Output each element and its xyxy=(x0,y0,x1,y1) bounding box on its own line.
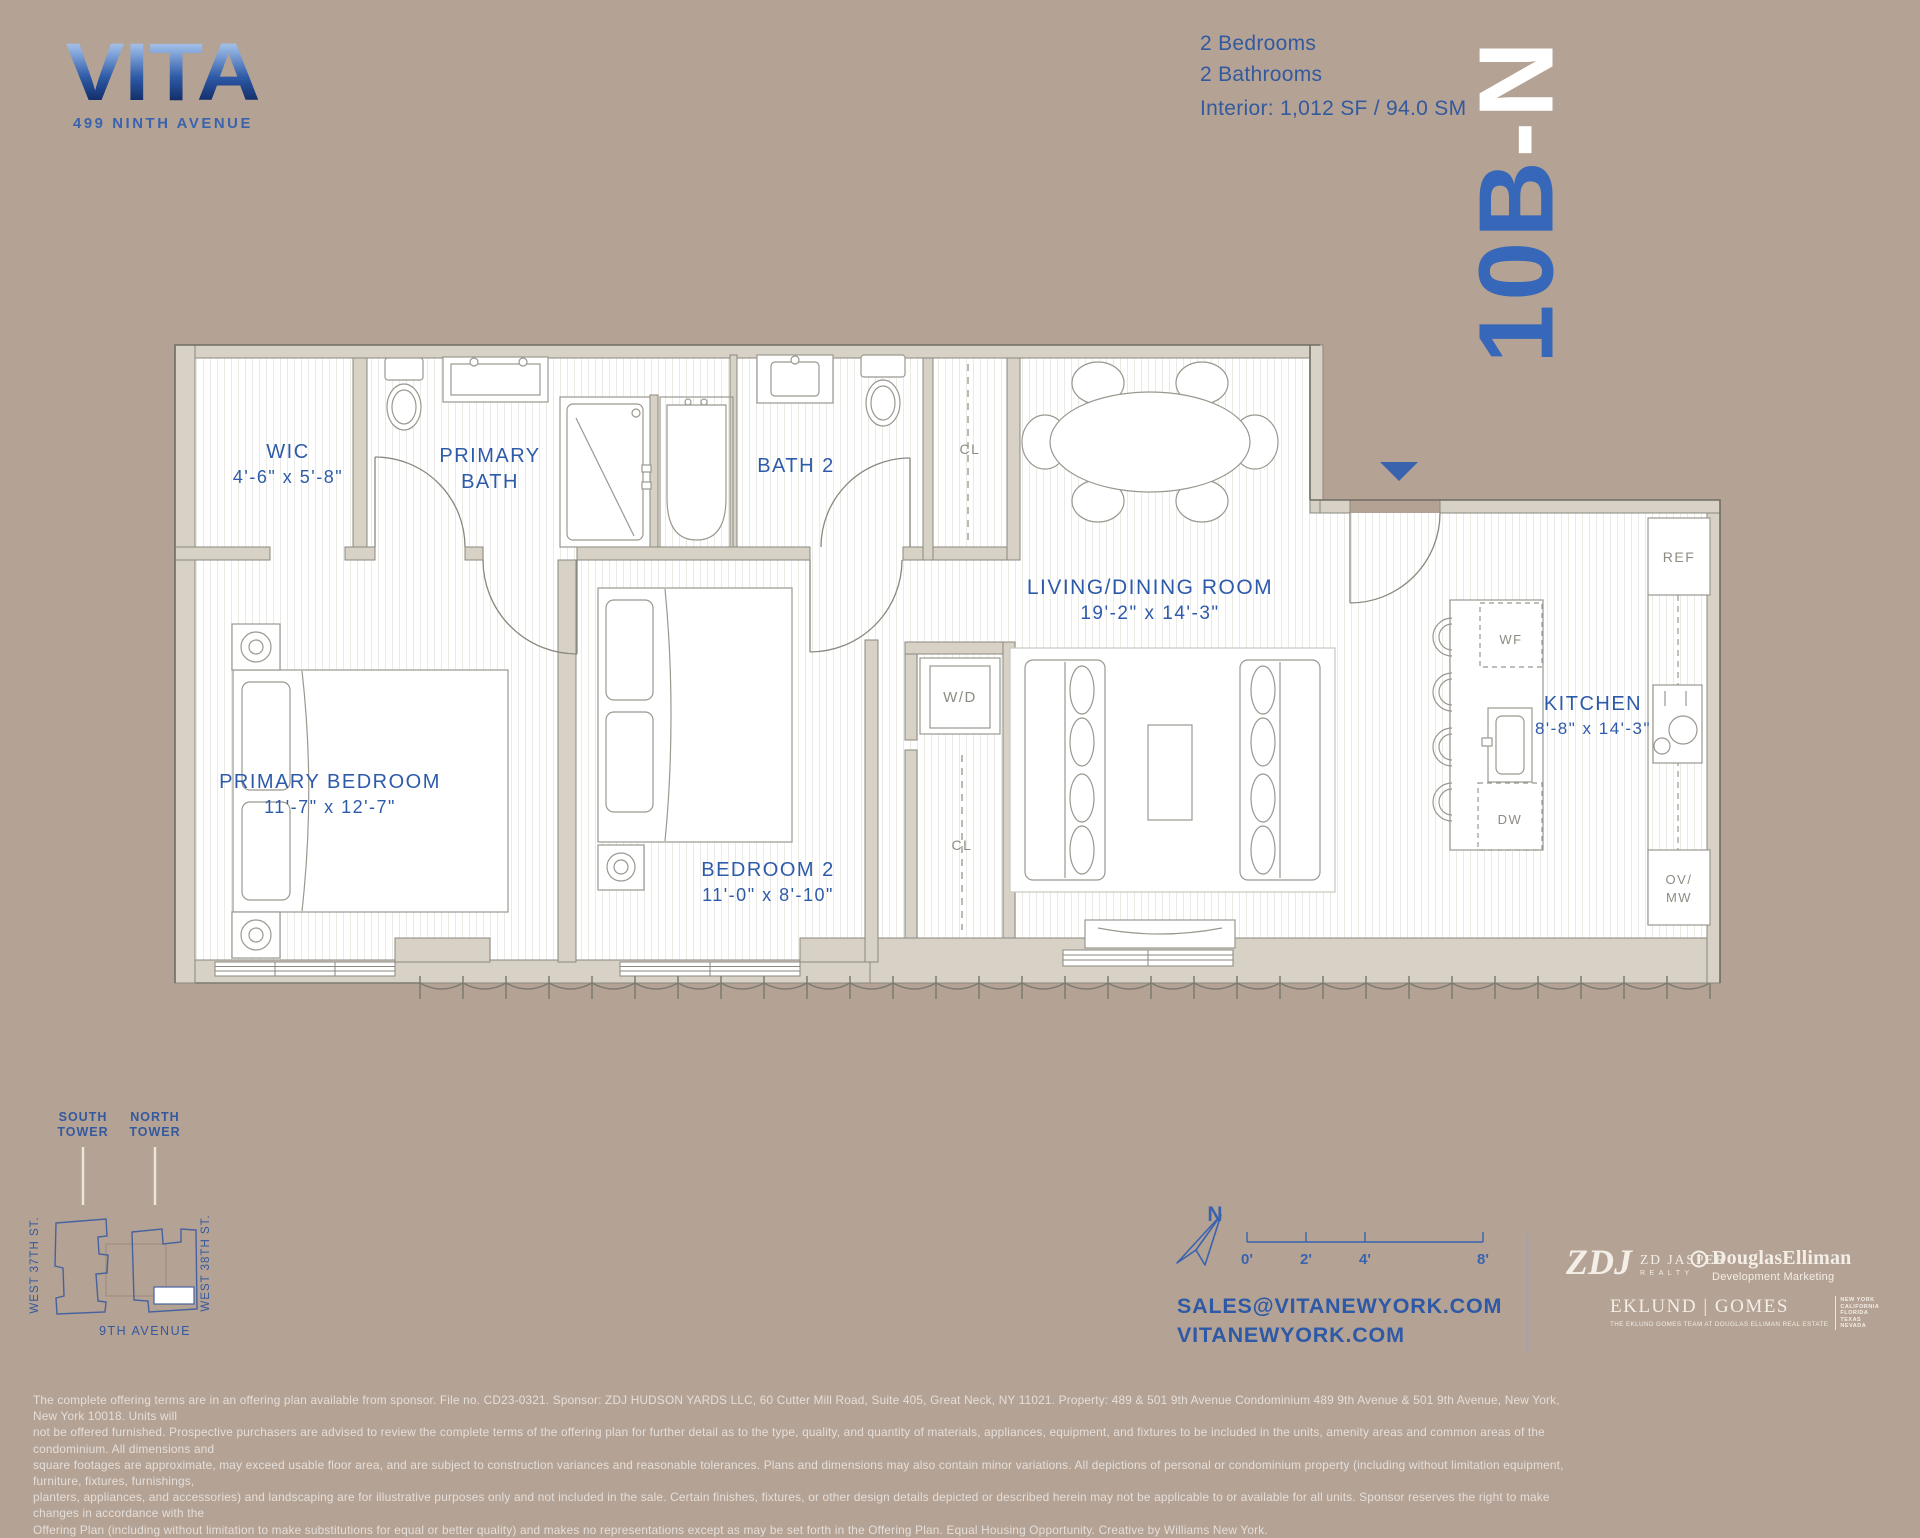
kitchen-island xyxy=(1450,600,1543,850)
interior-area: Interior: 1,012 SF / 94.0 SM xyxy=(1200,97,1466,121)
douglas-elliman-name: DouglasElliman xyxy=(1712,1247,1852,1270)
website-link[interactable]: VITANEWYORK.COM xyxy=(1177,1321,1502,1350)
bedroom-count: 2 Bedrooms xyxy=(1200,28,1322,59)
compass-arrow-icon xyxy=(1177,1215,1221,1265)
bath2-vanity xyxy=(757,355,833,403)
floorplan-flyer: { "meta": { "background": "#b4a294", "ac… xyxy=(0,0,1920,1484)
douglas-elliman-subtitle: Development Marketing xyxy=(1712,1271,1852,1283)
footer-divider xyxy=(1526,1233,1528,1353)
eklund-gomes-name: EKLUND | GOMES xyxy=(1610,1296,1828,1318)
sofa-left xyxy=(1025,660,1105,880)
unit-summary: 2 Bedrooms 2 Bathrooms xyxy=(1200,28,1322,90)
compass: N xyxy=(1165,1195,1245,1280)
unit-id-tower: -N xyxy=(1458,37,1576,157)
living-dims: 19'-2" x 14'-3" xyxy=(1080,603,1219,624)
eklund-gomes-logo: EKLUND | GOMES THE EKLUND GOMES TEAM AT … xyxy=(1610,1296,1879,1330)
vita-logo-address: 499 NINTH AVENUE xyxy=(73,116,253,132)
primary-bath-toilet xyxy=(385,358,423,430)
wic-label: WIC xyxy=(266,441,309,463)
west-37th-label: WEST 37TH ST. xyxy=(29,1216,41,1313)
washer-dryer-label: W/D xyxy=(943,689,977,706)
vita-logo: VITA 499 NINTH AVENUE xyxy=(48,20,278,140)
bath2-label: BATH 2 xyxy=(757,455,835,477)
oven-label-1: OV/ xyxy=(1666,872,1693,887)
north-tower-label-2: TOWER xyxy=(129,1125,180,1139)
vita-logo-wordmark: VITA xyxy=(66,27,261,118)
bedroom2-dims: 11'-0" x 8'-10" xyxy=(702,885,834,905)
south-tower-label-2: TOWER xyxy=(57,1125,108,1139)
range-stove xyxy=(1653,685,1702,763)
floor-plan: WIC 4'-6" x 5'-8" PRIMARY BATH BATH 2 CL… xyxy=(130,250,1730,1010)
primary-nightstand-top xyxy=(232,624,280,670)
contact-block: SALES@VITANEWYORK.COM VITANEWYORK.COM xyxy=(1177,1292,1502,1350)
scale-tick-0: 0' xyxy=(1241,1251,1253,1268)
tv-console xyxy=(1085,920,1235,948)
douglas-elliman-logo: DouglasElliman Development Marketing xyxy=(1690,1247,1852,1283)
west-38th-label: WEST 38TH ST. xyxy=(200,1214,212,1311)
disclaimer-line: not be offered furnished. Prospective pu… xyxy=(33,1424,1578,1456)
bathtub xyxy=(660,397,733,547)
fridge-label: REF xyxy=(1663,549,1696,565)
eklund-gomes-tagline: THE EKLUND GOMES TEAM AT DOUGLAS ELLIMAN… xyxy=(1610,1321,1828,1328)
bedroom2-nightstand xyxy=(598,845,644,890)
wic-dims: 4'-6" x 5'-8" xyxy=(233,467,343,487)
oven-microwave xyxy=(1648,850,1710,925)
sofa-right xyxy=(1240,660,1320,880)
wine-fridge-label: WF xyxy=(1499,632,1522,647)
primary-bedroom-label: PRIMARY BEDROOM xyxy=(219,771,441,793)
scale-tick-8: 8' xyxy=(1477,1251,1489,1268)
south-tower-label-1: SOUTH xyxy=(59,1110,108,1124)
kitchen-label: KITCHEN xyxy=(1544,693,1642,715)
sales-email-link[interactable]: SALES@VITANEWYORK.COM xyxy=(1177,1292,1502,1321)
north-tower-label-1: NORTH xyxy=(130,1110,179,1124)
living-label: LIVING/DINING ROOM xyxy=(1027,576,1273,599)
primary-bedroom-window xyxy=(215,962,395,976)
kitchen-dims: 8'-8" x 14'-3" xyxy=(1535,719,1651,738)
primary-nightstand-bottom xyxy=(232,912,280,958)
tower-leader-lines xyxy=(83,1147,155,1205)
zdj-monogram-icon: ZDJ xyxy=(1566,1245,1632,1279)
coffee-table xyxy=(1148,725,1192,820)
region-nv: NEVADA xyxy=(1840,1323,1879,1330)
shower xyxy=(560,397,651,547)
bedroom2-bed xyxy=(598,588,792,842)
primary-bath-label-2: BATH xyxy=(461,471,519,493)
facade-band xyxy=(195,938,1710,983)
primary-bedroom-dims: 11'-7" x 12'-7" xyxy=(264,797,396,817)
dishwasher-label: DW xyxy=(1498,812,1523,827)
douglas-elliman-circle-icon xyxy=(1690,1250,1708,1268)
south-tower-footprint xyxy=(55,1219,108,1314)
eklund-gomes-regions: NEW YORK CALIFORNIA FLORIDA TEXAS NEVADA xyxy=(1835,1296,1879,1330)
site-key-map: SOUTH TOWER NORTH TOWER WEST 37TH ST. WE… xyxy=(10,1105,280,1355)
entry-marker-icon xyxy=(1380,462,1418,481)
disclaimer-line: Offering Plan (including without limitat… xyxy=(33,1522,1578,1538)
disclaimer-line: square footages are approximate, may exc… xyxy=(33,1457,1578,1489)
disclaimer-line: planters, appliances, and accessories) a… xyxy=(33,1489,1578,1521)
bathroom-count: 2 Bathrooms xyxy=(1200,59,1322,90)
primary-bath-vanity xyxy=(443,357,548,402)
scale-bar: 0' 2' 4' 8' xyxy=(1240,1222,1500,1277)
oven-label-2: MW xyxy=(1666,890,1692,905)
region-ny: NEW YORK xyxy=(1840,1297,1879,1304)
bedroom2-window xyxy=(620,962,800,976)
scale-tick-4: 4' xyxy=(1359,1251,1371,1268)
legal-disclaimer: The complete offering terms are in an of… xyxy=(33,1392,1578,1538)
primary-bath-label-1: PRIMARY xyxy=(439,445,540,467)
scale-tick-2: 2' xyxy=(1300,1251,1312,1268)
living-room-window xyxy=(1063,950,1233,966)
disclaimer-line: The complete offering terms are in an of… xyxy=(33,1392,1578,1424)
bedroom2-label: BEDROOM 2 xyxy=(701,859,835,881)
center-closet-label: CL xyxy=(952,837,973,853)
hall-closet-label: CL xyxy=(960,441,981,457)
unit-location-highlight xyxy=(154,1287,194,1304)
ninth-avenue-label: 9TH AVENUE xyxy=(99,1324,191,1338)
